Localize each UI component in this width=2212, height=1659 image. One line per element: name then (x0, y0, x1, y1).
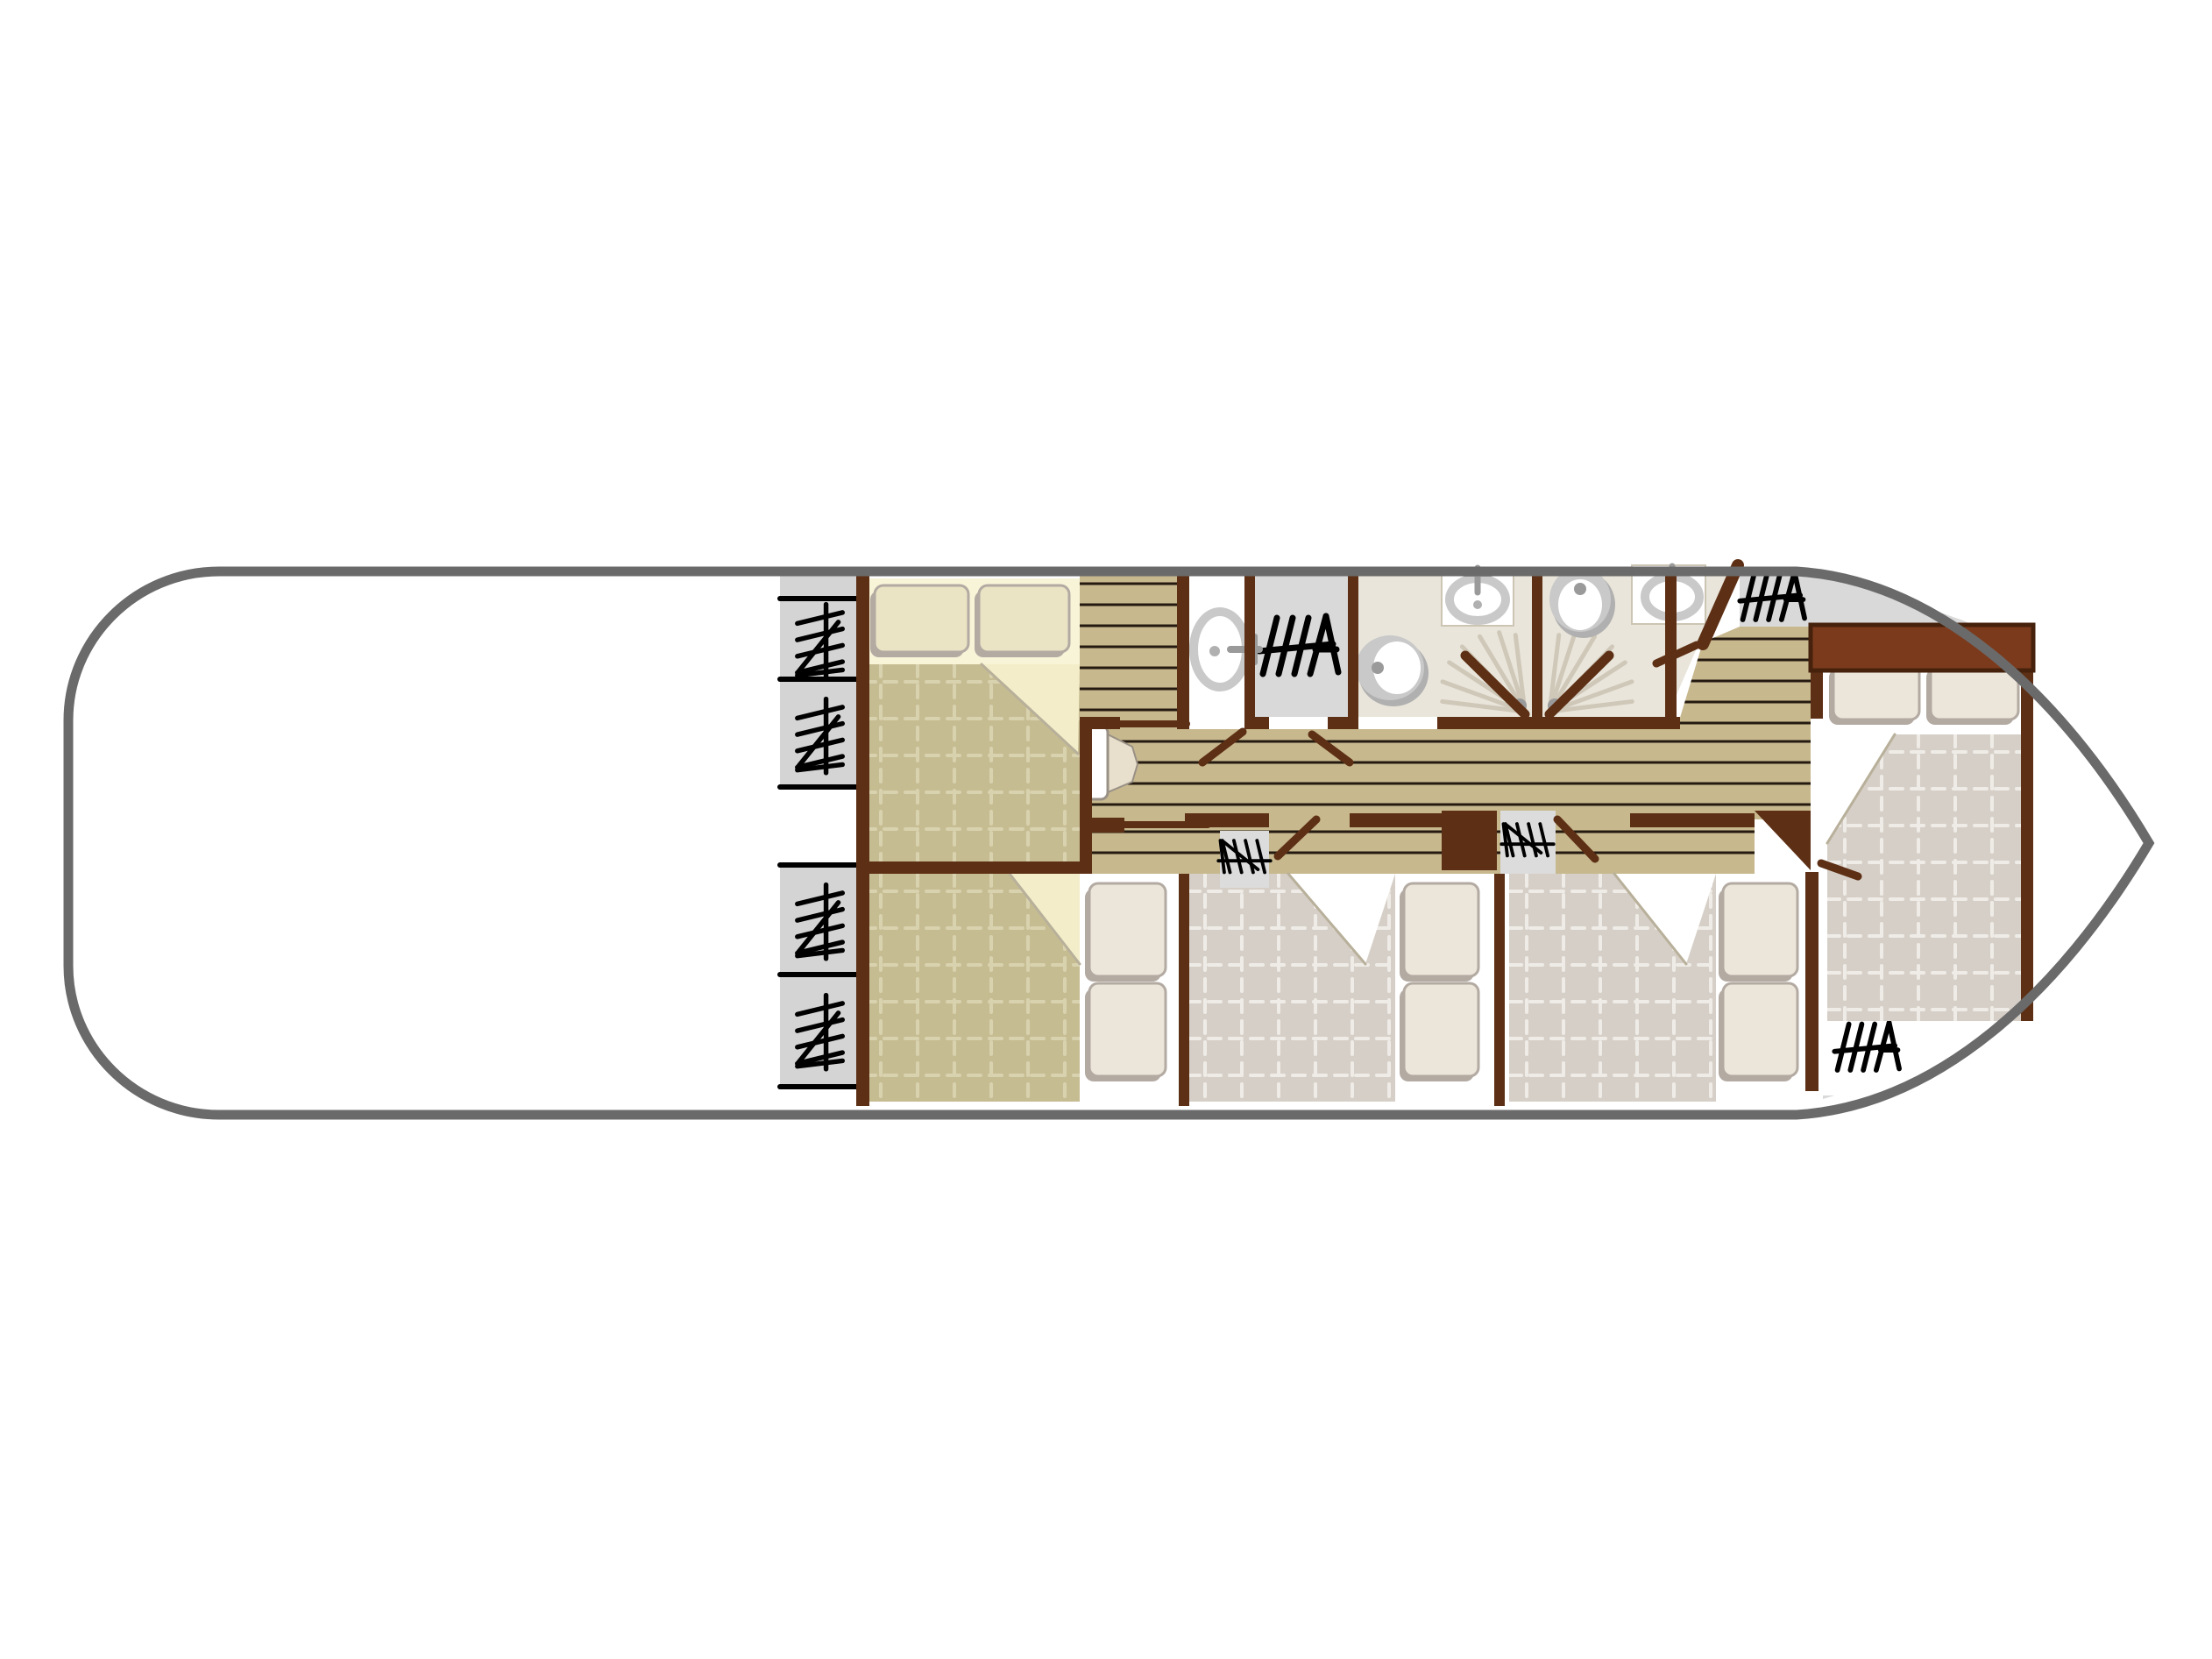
bathroom-divider-wall (1532, 571, 1542, 729)
aft-washroom-wall (1177, 571, 1189, 729)
aft-cabin-side-wall (1080, 717, 1092, 874)
toilet-flush-icon (1574, 583, 1586, 595)
bow-cabin-left-stub (1811, 670, 1823, 719)
cabin-left-wall (856, 571, 869, 1106)
guest-divider-wall-3 (1805, 872, 1819, 1091)
pillow (1723, 983, 1797, 1076)
floor-plan-page (0, 0, 2212, 1659)
aft-guest-bed (863, 874, 1179, 1102)
companionway-bathroom1-wall (1348, 571, 1358, 729)
houseboat-floor-plan (0, 0, 2212, 1659)
pillow (1404, 983, 1478, 1076)
bathroom2-right-wall (1665, 571, 1677, 720)
corridor-top-wall-d (1437, 717, 1680, 729)
pillow (1089, 983, 1166, 1076)
wardrobe-block (1442, 811, 1497, 870)
washroom-companionway-wall (1244, 571, 1255, 729)
fwd-guest-bed (1509, 874, 1805, 1102)
corridor-top-wall-b (1244, 717, 1269, 729)
pillow (1404, 883, 1478, 976)
aft-lower-divider-wall (856, 861, 1092, 874)
aft-cabin-floor (1080, 571, 1177, 729)
sink-drain-icon (1209, 646, 1220, 656)
pillow (1723, 883, 1797, 976)
pillow (979, 585, 1069, 652)
corridor-top-wall-c (1328, 717, 1354, 729)
toilet-flush-icon (1372, 662, 1384, 674)
sink-drain-icon (1473, 600, 1482, 609)
corridor-stub (1091, 818, 1124, 833)
guest-divider-wall-1 (1179, 874, 1189, 1106)
mid-guest-bed (1188, 874, 1494, 1102)
corridor-bottom-wall-b (1350, 813, 1442, 827)
guest-divider-wall-2 (1494, 874, 1505, 1106)
aft-cabin-bed (863, 578, 1080, 861)
corridor-bottom-wall-c (1630, 813, 1755, 827)
pillow (1089, 883, 1166, 976)
pillow (875, 585, 968, 652)
bow-cabin-right-wall (2021, 666, 2033, 1021)
bow-cabin-bed (1827, 657, 2026, 1021)
